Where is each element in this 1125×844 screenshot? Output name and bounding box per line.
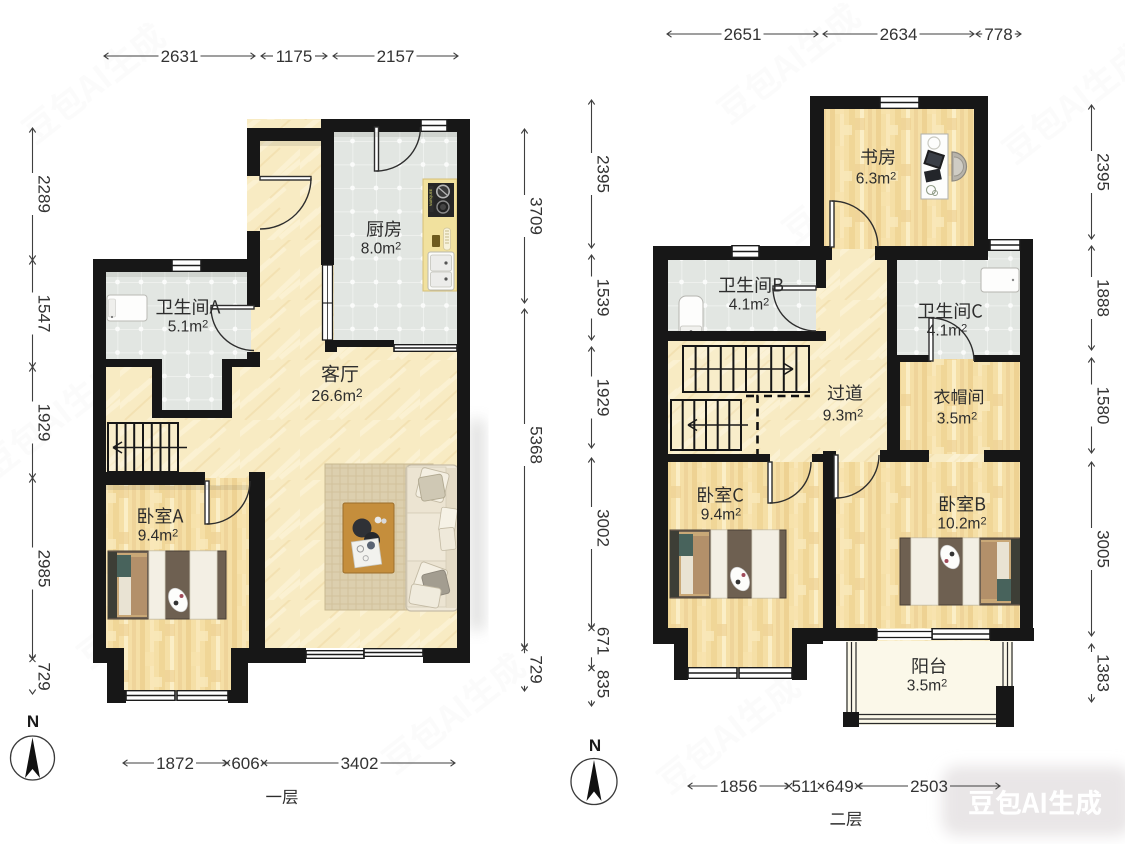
- svg-text:1175: 1175: [276, 47, 313, 66]
- svg-text:2651: 2651: [724, 25, 762, 44]
- svg-text:2634: 2634: [880, 25, 918, 44]
- svg-text:729: 729: [35, 662, 54, 690]
- svg-text:606: 606: [231, 754, 259, 773]
- svg-text:N: N: [27, 712, 39, 731]
- svg-text:1856: 1856: [720, 777, 758, 796]
- svg-text:729: 729: [527, 655, 546, 683]
- svg-text:3002: 3002: [594, 509, 613, 547]
- svg-text:649: 649: [825, 777, 853, 796]
- svg-text:671: 671: [594, 627, 613, 655]
- svg-text:10.2m2: 10.2m2: [937, 516, 986, 533]
- svg-text:3402: 3402: [341, 754, 379, 773]
- svg-text:1929: 1929: [35, 404, 54, 442]
- svg-text:2395: 2395: [1094, 153, 1113, 191]
- svg-text:1872: 1872: [156, 754, 194, 773]
- svg-text:1547: 1547: [35, 295, 54, 333]
- svg-text:1929: 1929: [594, 379, 613, 417]
- svg-text:5368: 5368: [527, 426, 546, 464]
- svg-text:26.6m2: 26.6m2: [311, 386, 362, 405]
- svg-text:511: 511: [791, 777, 818, 796]
- svg-text:2985: 2985: [35, 550, 54, 588]
- svg-text:3005: 3005: [1094, 530, 1113, 568]
- svg-text:3709: 3709: [527, 197, 546, 235]
- svg-text:1383: 1383: [1094, 654, 1113, 692]
- svg-text:1539: 1539: [594, 279, 613, 317]
- svg-text:2631: 2631: [161, 47, 199, 66]
- svg-text:MARQUEE: MARQUEE: [429, 188, 433, 206]
- svg-text:2503: 2503: [910, 777, 948, 796]
- svg-text:N: N: [589, 736, 601, 755]
- svg-text:1888: 1888: [1094, 279, 1113, 317]
- svg-text:2395: 2395: [594, 155, 613, 193]
- svg-text:835: 835: [594, 670, 613, 698]
- svg-text:778: 778: [984, 25, 1012, 44]
- svg-text:2289: 2289: [35, 175, 54, 213]
- svg-text:2157: 2157: [377, 47, 415, 66]
- svg-text:1580: 1580: [1094, 387, 1113, 425]
